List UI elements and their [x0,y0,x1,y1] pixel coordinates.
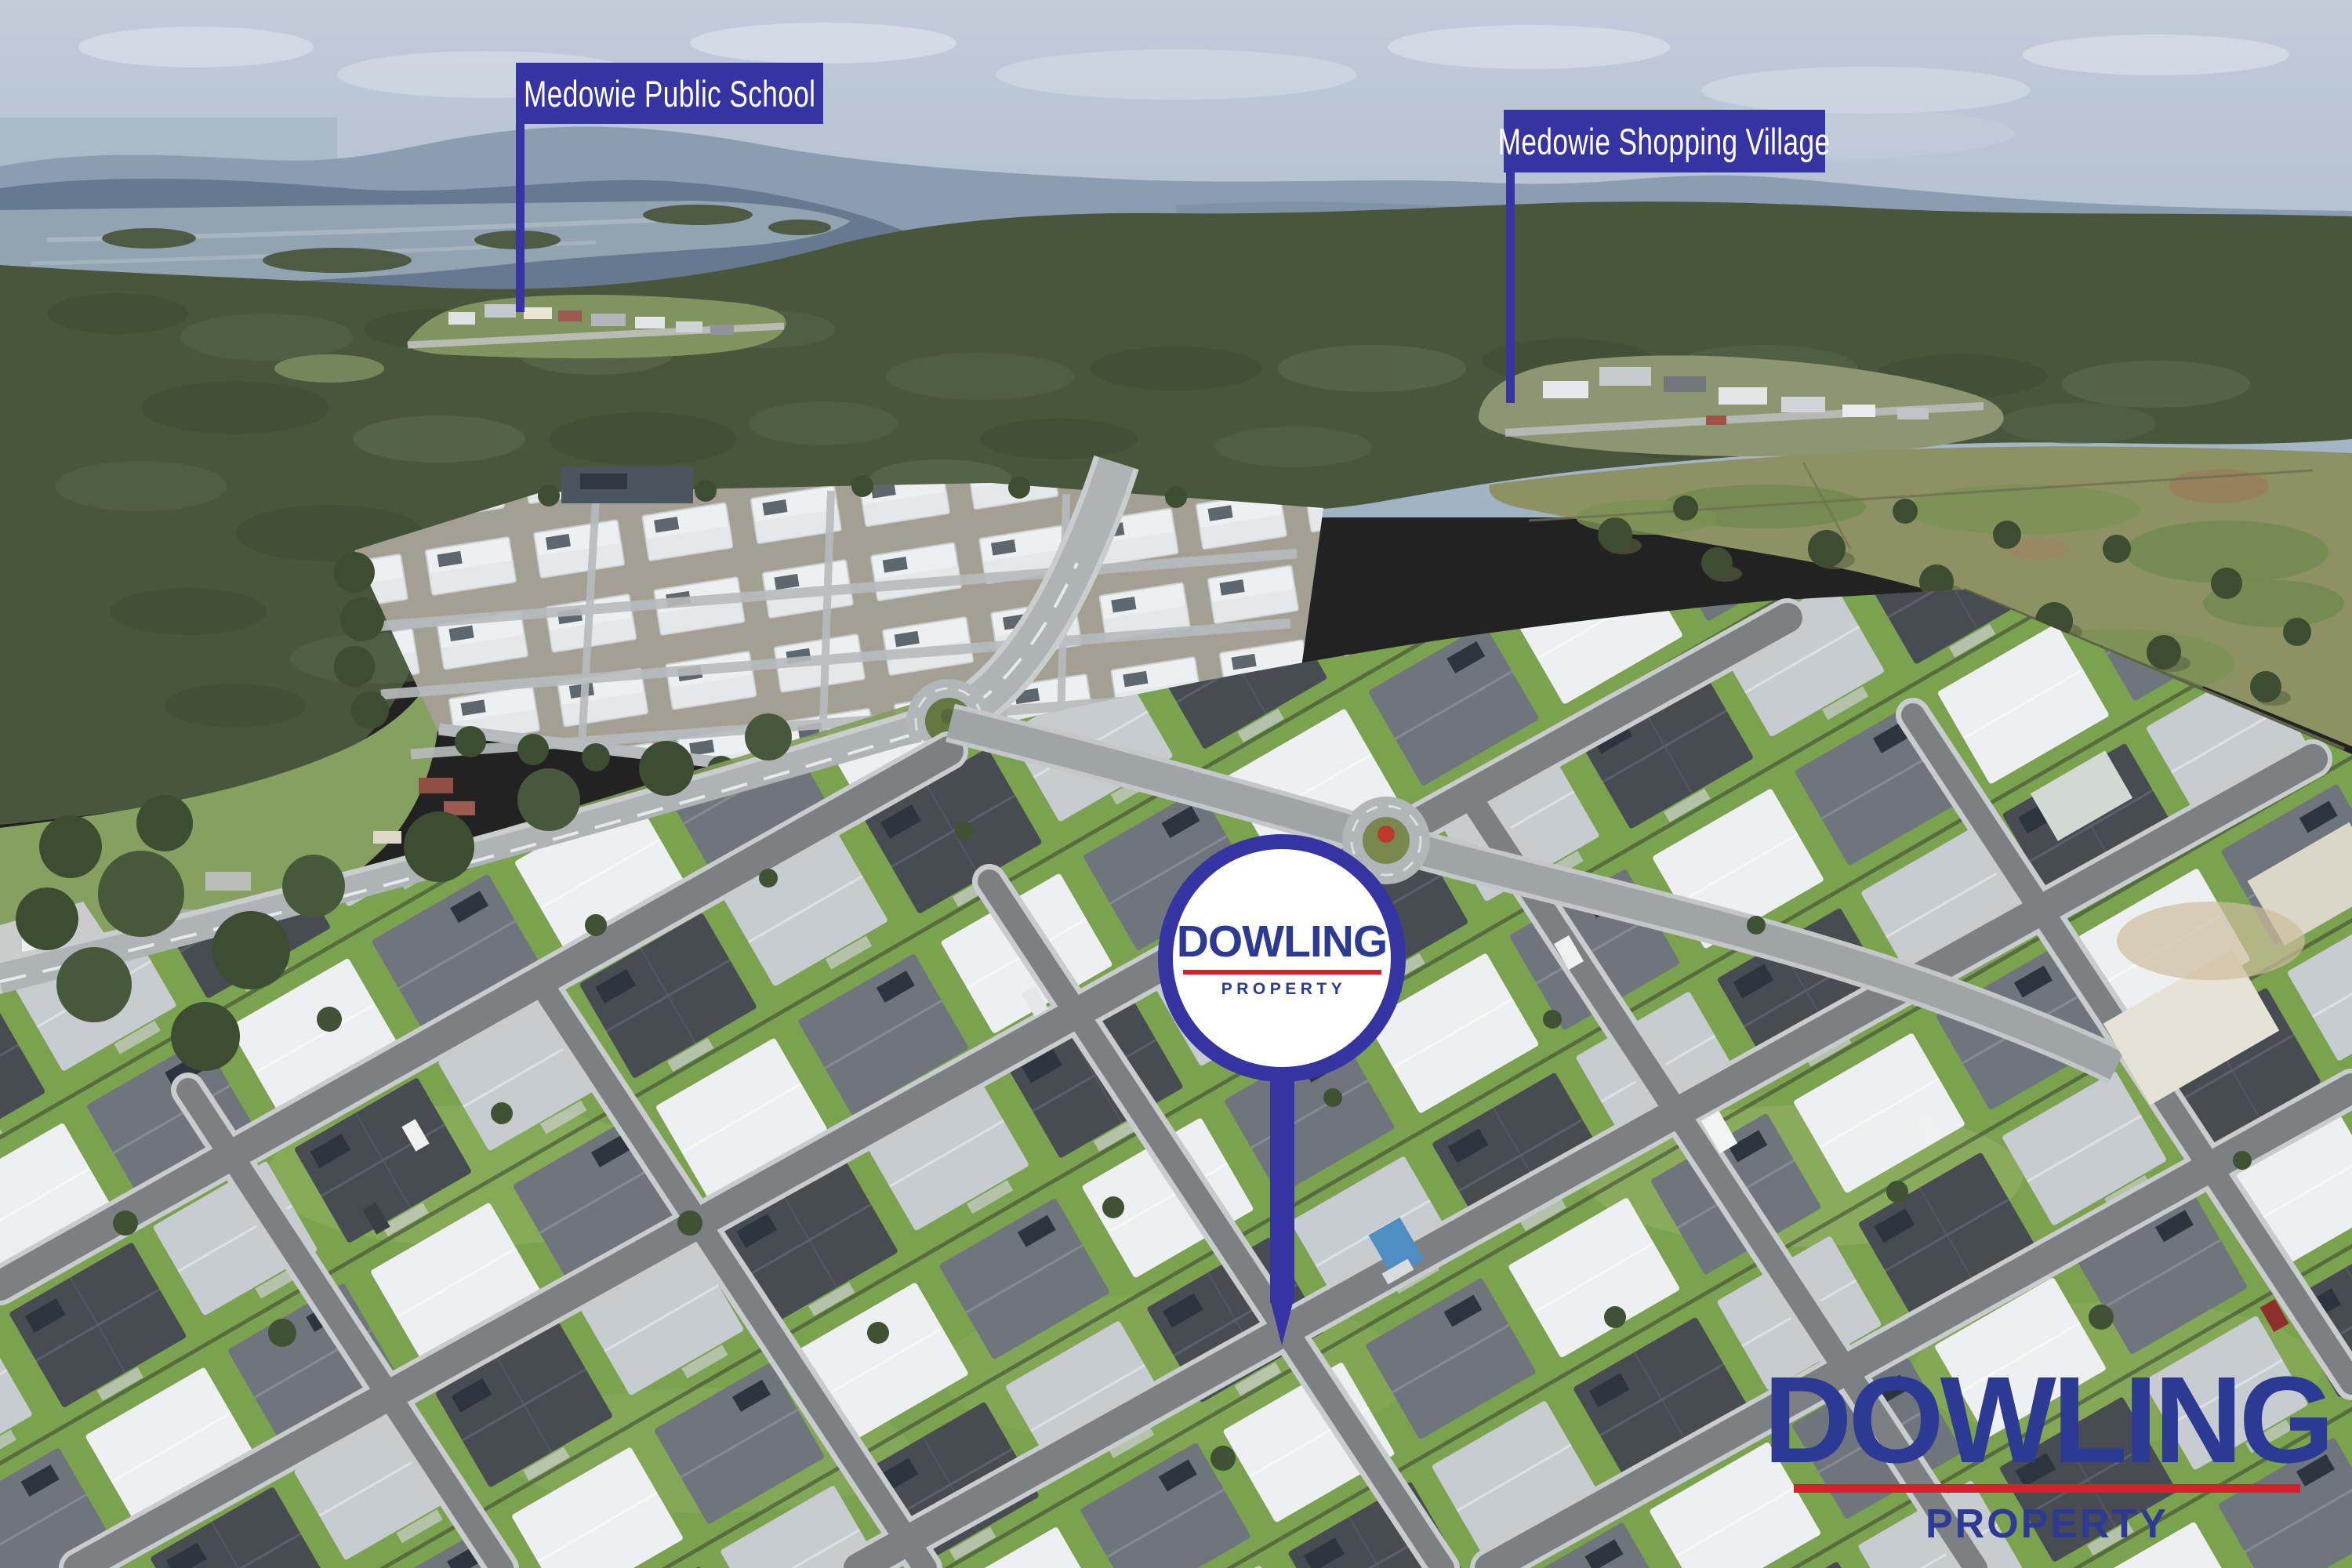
shopping-village-label: Medowie Shopping Village [1504,110,1825,172]
pin-red-rule [1183,970,1381,975]
pin-tip-icon [1270,1300,1294,1345]
aerial-marketing-image: Medowie Public School Medowie Shopping V… [0,0,2352,1568]
school-label: Medowie Public School [516,63,823,124]
agency-watermark: DOWLING PROPERTY [1760,1370,2334,1544]
pin-stem [1270,1076,1294,1303]
aerial-photo [0,0,2352,1568]
pin-brand-text: DOWLING [1177,920,1387,964]
property-location-pin: DOWLING PROPERTY [1158,834,1406,1082]
watermark-brand-text: DOWLING [1760,1370,2334,1472]
school-label-text: Medowie Public School [524,72,815,115]
pin-division-text: PROPERTY [1218,981,1347,997]
watermark-division-text: PROPERTY [1760,1504,2334,1544]
school-leader-line [516,122,524,312]
shopping-village-label-text: Medowie Shopping Village [1498,120,1831,163]
shopping-village-leader-line [1506,171,1515,403]
